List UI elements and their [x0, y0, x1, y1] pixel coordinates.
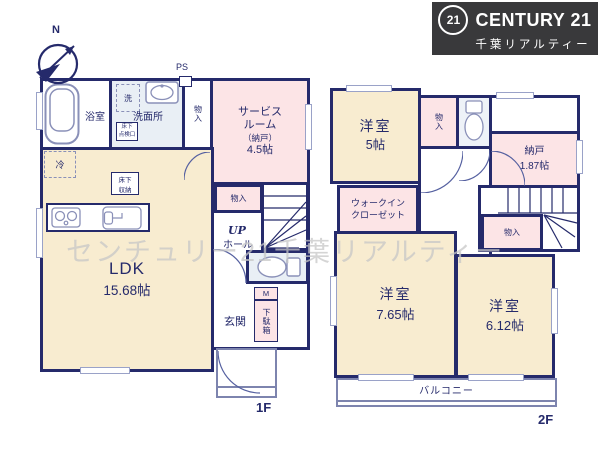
underfloor-hatch-line1: 床下 — [121, 124, 132, 131]
floor-plan-page: N 21 CENTURY 21 千葉リアルティー 浴室 洗 洗面所 床下 点検口… — [0, 0, 600, 450]
century21-logo: 21 CENTURY 21 千葉リアルティー — [432, 2, 598, 55]
logo-badge-icon: 21 — [438, 5, 468, 35]
label-bath: 浴室 — [80, 112, 110, 125]
window-hall2f-top — [496, 92, 534, 99]
label-wic-line1: ウォークイン — [351, 198, 405, 209]
window-ldk-left — [36, 208, 43, 258]
room-closet-2f-top: 物入 — [418, 95, 459, 149]
label-service-l1: サービス — [238, 106, 282, 120]
label-ldk-size: 15.68帖 — [57, 283, 197, 300]
hall-2f-upper — [489, 95, 580, 134]
room-wic: ウォークイン クローゼット — [337, 185, 419, 234]
meter-box: M — [254, 287, 278, 300]
door-arc-storage — [491, 151, 525, 186]
window-bedroom612-right — [551, 288, 558, 334]
label-bedroom-765: 洋室 — [380, 286, 412, 304]
stove-icon — [51, 207, 81, 228]
kitchen-sink-icon — [102, 206, 142, 230]
label-closet-1f-mid: 物入 — [231, 194, 247, 204]
label-meter: M — [263, 289, 269, 298]
window-bedroom765-bottom — [358, 374, 414, 381]
fridge-space: 冷 — [44, 151, 76, 178]
window-ldk-bottom — [80, 367, 130, 374]
label-closet-2f-stairs: 物入 — [504, 228, 520, 238]
window-bedroom612-bottom — [468, 374, 524, 381]
label-closet-2f-top: 物入 — [434, 113, 444, 131]
window-bedroom765-left — [330, 276, 337, 326]
compass-icon: N — [24, 26, 92, 94]
north-label: N — [52, 24, 60, 38]
floor-label-2f: 2F — [538, 412, 553, 427]
label-bedroom-612-size: 6.12帖 — [486, 318, 524, 334]
underfloor-hatch: 床下 点検口 — [116, 122, 138, 141]
toilet-icon-2f — [462, 99, 486, 145]
label-closet-1f-top: 物入 — [193, 105, 203, 123]
door-arc-service — [184, 152, 212, 182]
balcony-edge-line — [336, 400, 557, 402]
door-arc-entrance — [218, 351, 260, 395]
floor-label-1f: 1F — [256, 400, 271, 415]
entrance-label: 玄関 — [213, 316, 257, 330]
room-bedroom-5: 洋室 5帖 — [330, 88, 421, 184]
label-bedroom-5-size: 5帖 — [366, 138, 385, 154]
window-storage-right — [576, 140, 583, 174]
window-service-right — [305, 104, 312, 150]
window-bath-left — [36, 92, 43, 130]
underfloor-hatch-line2: 点検口 — [119, 132, 136, 139]
balcony: バルコニー — [336, 378, 557, 407]
logo-name: CENTURY 21 — [475, 10, 591, 31]
sink-icon — [145, 81, 179, 104]
label-bedroom-612: 洋室 — [489, 298, 521, 316]
underfloor-storage-line1: 床下 — [119, 174, 132, 184]
door-arc-bedroom5 — [421, 151, 463, 193]
door-arc-toilet-2f — [459, 150, 490, 181]
ps-shaft — [179, 76, 192, 87]
logo-company: 千葉リアルティー — [475, 36, 590, 52]
label-wic-line2: クローゼット — [351, 210, 405, 221]
label-storage: 納戸 — [525, 146, 545, 159]
watermark: センチュリー21千葉リアルティー — [66, 230, 504, 269]
shoe-cabinet: 下駄箱 — [254, 300, 278, 342]
label-service-l4: 4.5帖 — [247, 144, 273, 158]
underfloor-storage-line2: 収納 — [119, 184, 132, 194]
label-fridge: 冷 — [55, 158, 64, 171]
window-bedroom5-top — [346, 85, 392, 92]
ps-label: PS — [176, 62, 188, 73]
room-closet-1f-top: 物入 — [182, 78, 213, 150]
label-balcony: バルコニー — [419, 386, 474, 399]
room-bedroom-612: 洋室 6.12帖 — [455, 254, 555, 378]
underfloor-storage: 床下 収納 — [111, 172, 139, 195]
label-laundry: 洗 — [124, 93, 132, 104]
label-bedroom-765-size: 7.65帖 — [376, 307, 414, 323]
washing-machine-area: 洗 — [116, 84, 140, 112]
label-bedroom-5: 洋室 — [360, 118, 392, 136]
room-closet-1f-mid: 物入 — [214, 184, 263, 213]
label-service-l2: ルーム — [244, 119, 277, 133]
label-service-l3: （納戸） — [243, 133, 277, 144]
label-shoebox: 下駄箱 — [261, 308, 271, 335]
room-service: サービス ルーム （納戸） 4.5帖 — [210, 78, 310, 185]
